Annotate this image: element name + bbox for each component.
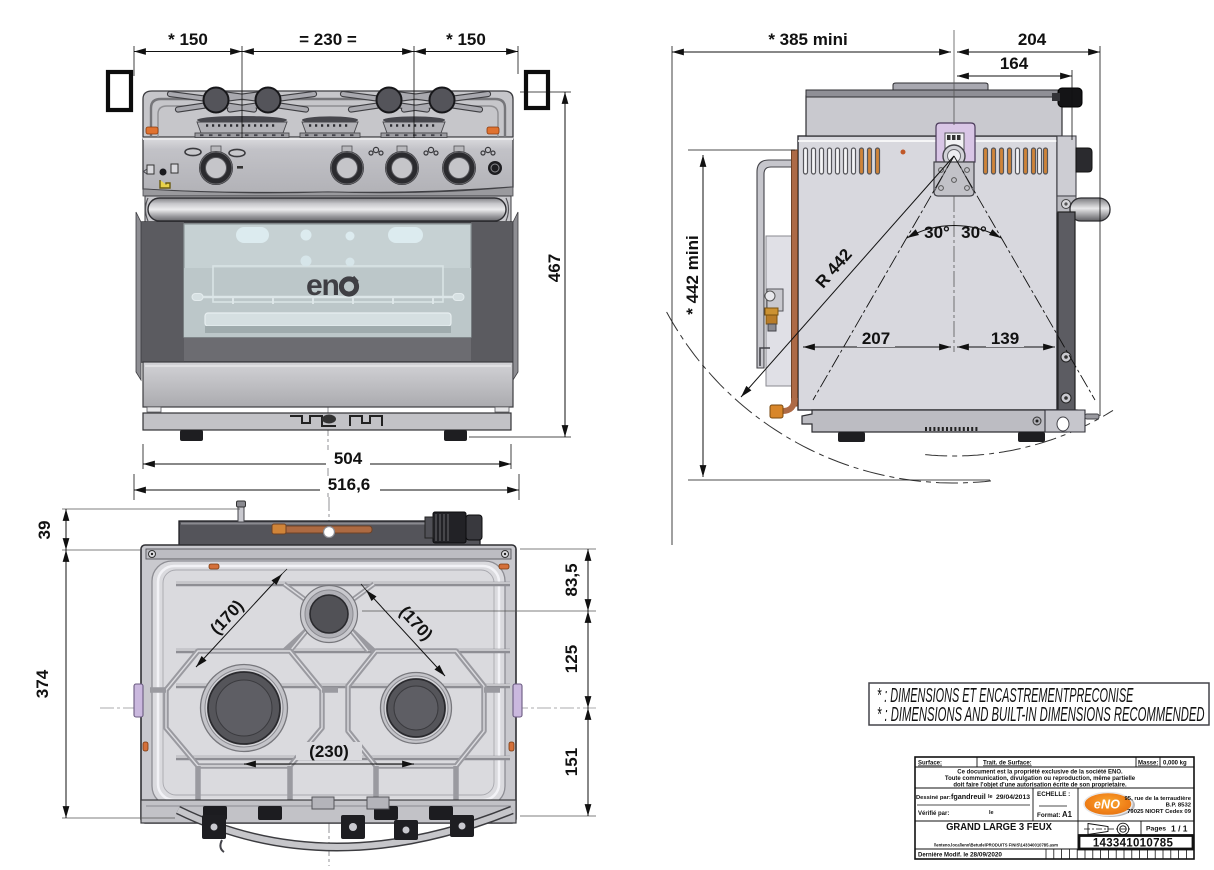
svg-text:fgandreuil: fgandreuil (951, 792, 986, 801)
svg-text:29/04/2013: 29/04/2013 (996, 794, 1030, 801)
svg-text:204: 204 (1018, 30, 1047, 49)
svg-text:0,000 kg: 0,000 kg (1163, 761, 1187, 767)
svg-text:467: 467 (545, 254, 564, 282)
svg-text:GRAND LARGE 3 FEUX: GRAND LARGE 3 FEUX (946, 822, 1052, 834)
svg-text:eNO: eNO (1094, 798, 1120, 812)
svg-text:(230): (230) (309, 742, 349, 761)
svg-text:= 230 =: = 230 = (299, 30, 357, 49)
svg-text:374: 374 (33, 669, 52, 698)
svg-text:Masse:: Masse: (1138, 761, 1158, 767)
svg-text:B.P. 8532: B.P. 8532 (1166, 803, 1192, 809)
svg-text:Dessiné par:: Dessiné par: (916, 795, 951, 801)
svg-text:207: 207 (862, 329, 890, 348)
svg-text:516,6: 516,6 (328, 475, 371, 494)
svg-text:95, rue de la terraudière: 95, rue de la terraudière (1125, 796, 1192, 802)
svg-text:\\enteno.local\eno\Betude\PROD: \\enteno.local\eno\Betude\PRODUITS FINIS… (934, 843, 1058, 848)
svg-text:ECHELLE :: ECHELLE : (1037, 791, 1070, 798)
svg-text:doit faire l'objet d'une autor: doit faire l'objet d'une autorisation éc… (953, 783, 1127, 789)
svg-text:Trait. de Surface:: Trait. de Surface: (983, 761, 1032, 767)
svg-text:125: 125 (562, 645, 581, 673)
svg-text:139: 139 (991, 329, 1019, 348)
svg-text:* 150: * 150 (168, 30, 208, 49)
svg-text:164: 164 (1000, 54, 1029, 73)
svg-text:Vérifié par:: Vérifié par: (918, 811, 949, 817)
svg-text:A1: A1 (1062, 810, 1073, 819)
svg-text:* 150: * 150 (446, 30, 486, 49)
svg-text:79025 NIORT Cedex 09: 79025 NIORT Cedex 09 (1127, 809, 1192, 815)
svg-text:Ce document est la propriété e: Ce document est la propriété exclusive d… (957, 770, 1123, 776)
svg-text:Surface:: Surface: (918, 761, 942, 767)
svg-text:le: le (989, 810, 994, 816)
svg-text:30°: 30° (961, 223, 987, 242)
svg-text:Dernière Modif. le: Dernière Modif. le (918, 853, 969, 859)
svg-text:143341010785: 143341010785 (1093, 838, 1174, 850)
svg-text:Format:: Format: (1037, 812, 1060, 819)
svg-text:83,5: 83,5 (562, 563, 581, 596)
svg-text:* 385 mini: * 385 mini (768, 30, 847, 49)
svg-text:1 / 1: 1 / 1 (1171, 824, 1188, 834)
svg-text:504: 504 (334, 449, 363, 468)
svg-text:28/09/2020: 28/09/2020 (970, 852, 1002, 859)
svg-text:Pages: Pages (1146, 826, 1166, 833)
svg-text:39: 39 (35, 521, 54, 540)
svg-text:* 442 mini: * 442 mini (683, 235, 702, 314)
svg-text:151: 151 (562, 748, 581, 776)
svg-text:le: le (988, 794, 993, 800)
svg-text:* : DIMENSIONS AND BUILT-IN DI: * : DIMENSIONS AND BUILT-IN DIMENSIONS R… (877, 702, 1205, 726)
svg-text:30°: 30° (924, 223, 950, 242)
svg-text:Toute communication, divulgati: Toute communication, divulgation ou repr… (945, 776, 1136, 782)
svg-text:en: en (306, 269, 339, 302)
